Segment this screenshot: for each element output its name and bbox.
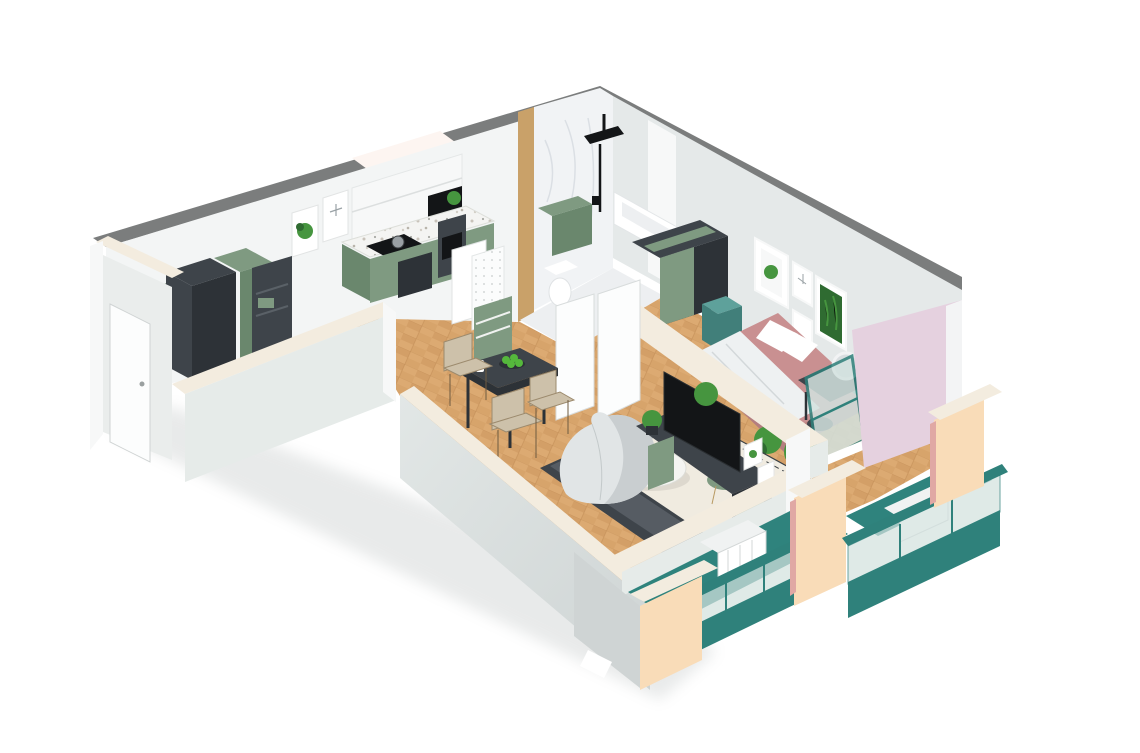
mid-pillar-pink-edge <box>790 499 796 596</box>
leaning-frame-art <box>749 450 757 458</box>
wardrobe-green-door <box>660 247 694 326</box>
counter-plant <box>447 191 461 205</box>
right-pillar-pink-edge <box>930 421 936 505</box>
hall-plant-pot <box>646 426 658 435</box>
plywood-wall-edge <box>518 107 534 322</box>
entry-edge-strip <box>90 241 103 450</box>
door-handle <box>140 382 145 387</box>
wall-corner-edge <box>383 302 396 402</box>
console-plant <box>694 382 718 406</box>
open-door-1 <box>598 280 640 420</box>
apple <box>507 360 515 368</box>
entry-art-plant-shadow <box>296 223 304 231</box>
floorplan-render <box>0 0 1140 753</box>
shelf-green-box <box>258 298 274 308</box>
pot-on-cooktop <box>392 236 404 248</box>
isometric-scene <box>0 0 1140 753</box>
apple <box>515 359 523 367</box>
bedroom-art-plant-1 <box>764 265 778 279</box>
shower-mixer <box>592 196 601 205</box>
